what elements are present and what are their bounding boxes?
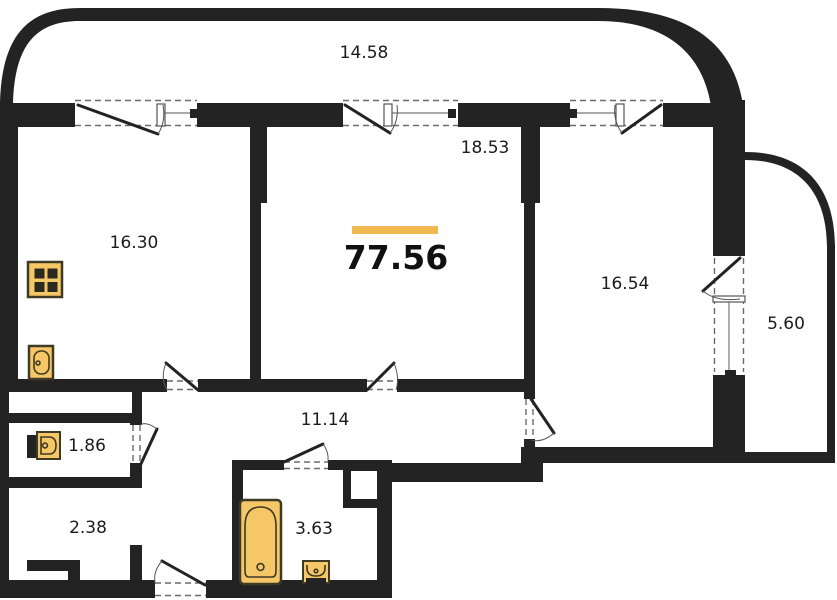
right-window-sill-top: [713, 252, 745, 256]
bathroom-door: [284, 444, 328, 469]
living-hall-door: [367, 363, 398, 390]
bathtub-icon: [240, 500, 281, 584]
total-area-label: 77.56: [344, 238, 448, 277]
room-label-kitchen: 16.30: [110, 233, 159, 253]
wall-living-bedroom-upper: [521, 127, 540, 203]
room-label-bathroom: 3.63: [295, 519, 333, 539]
doors: [78, 105, 740, 596]
balcony-door-kitchen: [78, 105, 164, 134]
storage-right-stub: [130, 545, 142, 581]
bathroom-sink-icon: [303, 561, 329, 584]
room-label-hall: 11.14: [301, 410, 350, 430]
toilet-icon: [27, 432, 60, 459]
duct-stub: [132, 392, 142, 413]
wc-door-post-top: [130, 413, 142, 425]
right-window-nub: [725, 370, 736, 377]
inner-walls: [8, 127, 745, 598]
bedroom-bottom-wall: [521, 447, 718, 463]
wall-living-bedroom-lower: [524, 203, 535, 399]
room-label-living: 18.53: [461, 138, 510, 158]
balcony-right-curve: [745, 152, 835, 248]
accent-bar: [352, 226, 438, 234]
kitchen-sink-icon: [29, 346, 53, 379]
wall-kitchen-living-lower: [250, 203, 261, 391]
floor-plan-canvas: 77.56 14.58 18.53 16.30 16.54 5.60 11.14…: [0, 0, 837, 600]
wall-kitchen-living-upper: [250, 127, 267, 203]
nook-wall-v: [68, 571, 80, 583]
windows: [75, 101, 745, 373]
wc-bottom-wall: [8, 477, 142, 488]
room-label-balcony-right: 5.60: [767, 314, 805, 334]
outer-walls: [0, 8, 835, 598]
hall-bottom-wall: [388, 463, 543, 482]
wc-top-wall: [8, 413, 142, 423]
bottom-wall-right: [206, 580, 392, 598]
left-wall-lower: [0, 391, 9, 598]
bath-top-wall-1: [232, 460, 284, 470]
hall-top-wall-2: [198, 379, 367, 392]
balcony-right-bottom: [744, 452, 835, 463]
room-label-bedroom: 16.54: [601, 274, 650, 294]
left-wall-upper: [0, 106, 18, 392]
bedroom-balcony-door: [703, 258, 740, 300]
shaft-hole: [351, 471, 377, 499]
hall-top-wall-3: [397, 379, 524, 392]
balcony-window-kitchen: [75, 101, 199, 127]
room-label-storage: 2.38: [69, 518, 107, 538]
balcony-top-wall: [0, 8, 745, 132]
wc-door: [133, 424, 157, 466]
nook-wall-h: [27, 560, 80, 571]
bedroom-balcony-window: [713, 258, 745, 372]
room-label-wc: 1.86: [68, 436, 106, 456]
room-label-balcony-top: 14.58: [340, 43, 389, 63]
entrance-door: [155, 561, 206, 596]
balcony-right-wall: [827, 244, 835, 463]
floor-plan: 77.56 14.58 18.53 16.30 16.54 5.60 11.14…: [0, 0, 837, 600]
bedroom-hall-door: [526, 399, 554, 441]
stove-icon: [28, 262, 62, 297]
kitchen-hall-door: [163, 363, 198, 390]
hall-top-wall-1: [8, 379, 167, 392]
